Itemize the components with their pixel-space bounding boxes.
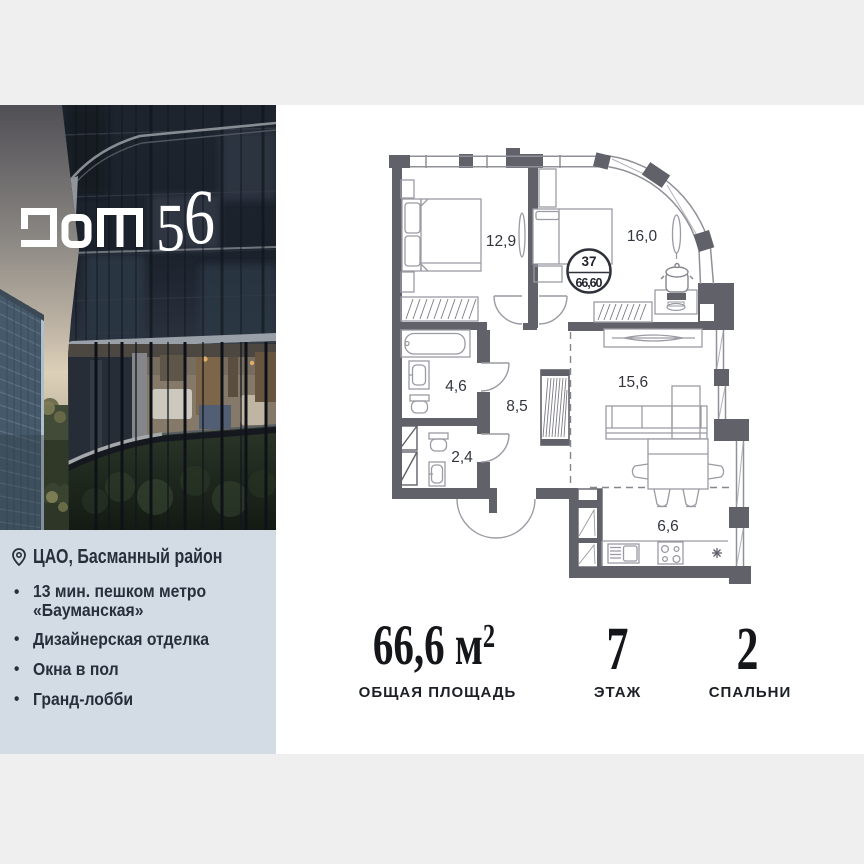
svg-text:15,6: 15,6 <box>618 374 648 391</box>
svg-text:4,6: 4,6 <box>445 378 467 395</box>
svg-text:16,0: 16,0 <box>627 228 658 245</box>
svg-text:66,60: 66,60 <box>576 276 603 290</box>
svg-text:37: 37 <box>581 254 596 269</box>
svg-text:6,6: 6,6 <box>657 518 679 535</box>
svg-text:8,5: 8,5 <box>506 398 528 415</box>
svg-text:12,9: 12,9 <box>486 233 516 250</box>
svg-text:2,4: 2,4 <box>451 449 473 466</box>
